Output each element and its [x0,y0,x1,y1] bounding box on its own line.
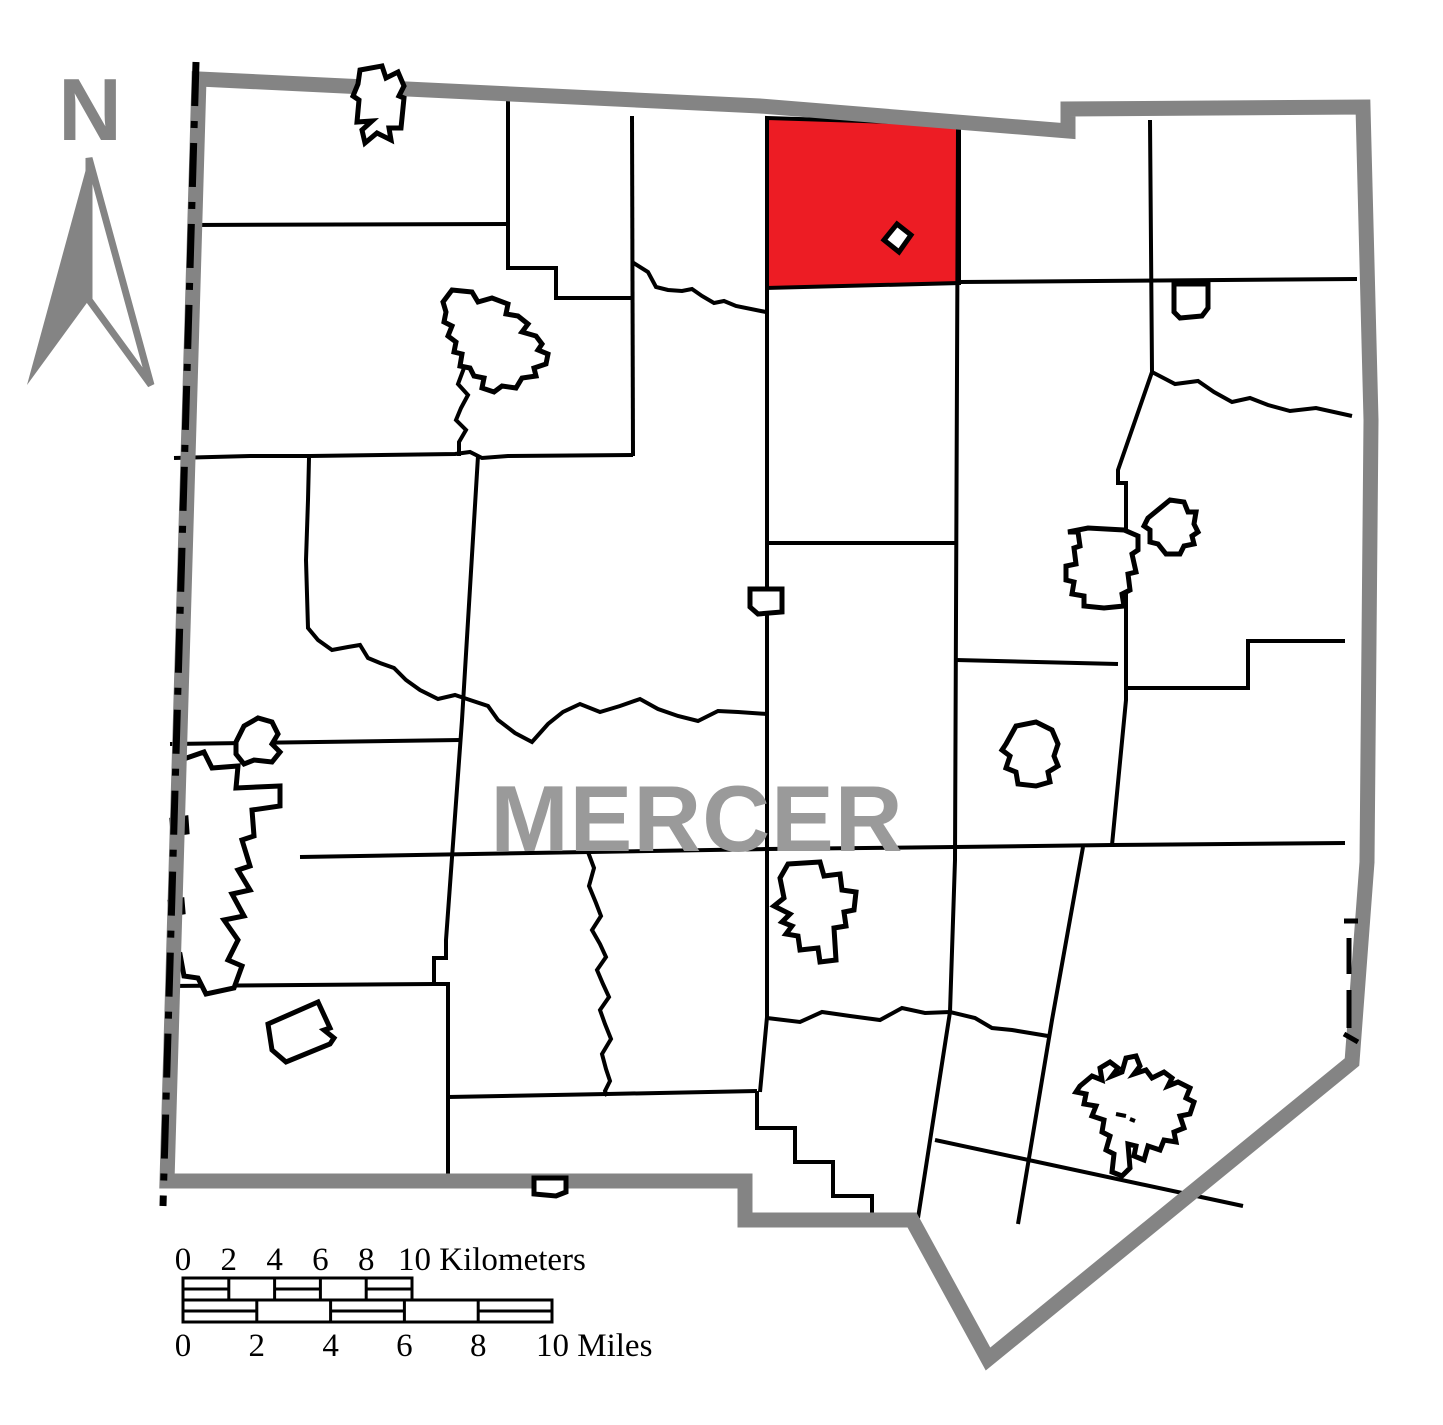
borough-outline [534,1178,566,1196]
county-name-label: MERCER [490,766,903,871]
borough-outline [1002,722,1058,786]
km-tick-6: 6 [312,1242,329,1278]
north-arrow-icon: N [27,60,151,385]
borough-outlines [170,224,1208,1176]
borough-outline [774,862,856,962]
county-map-canvas: MERCER N 0 2 4 6 8 10 Kilometers 0 2 4 6… [0,0,1443,1425]
boundary-line [170,740,460,744]
borough-outline [1144,500,1198,554]
township-boundary-lines [168,95,1357,1224]
boundary-line [306,458,767,742]
borough-outline [236,718,280,764]
borough-outline [750,589,782,614]
borough-outline [170,752,280,994]
boundary-line [956,641,1345,688]
boundary-line [190,224,508,225]
boundary-line [456,368,468,456]
state-line-dash-dot [163,62,196,1206]
boundary-line [767,1008,1048,1036]
north-arrow-right-wing [89,158,151,385]
borough-outline [268,1002,334,1062]
mi-tick-8: 8 [470,1328,487,1364]
mercer-county-map: MERCER N 0 2 4 6 8 10 Kilometers 0 2 4 6… [0,0,1443,1425]
km-tick-0: 0 [175,1242,192,1278]
highlighted-township [767,118,959,288]
river-boundary [588,852,611,1096]
boundary-line [1112,120,1152,845]
boundary-line [434,456,478,1182]
boundary-line [959,279,1357,282]
km-tick-4: 4 [266,1242,283,1278]
boundary-line [918,128,958,1218]
km-tick-8: 8 [358,1242,375,1278]
km-end-label: 10 Kilometers [398,1242,586,1278]
boundary-line [508,95,632,298]
boundary-line [757,1091,872,1216]
borough-outline [1174,284,1208,318]
miles-scalebar: 0 2 4 6 8 10 Miles [175,1300,653,1364]
boundary-line [1152,372,1352,416]
km-scalebar: 0 2 4 6 8 10 Kilometers [175,1242,586,1300]
borough-outline [353,66,404,143]
mi-tick-6: 6 [396,1328,413,1364]
north-arrow-left-wing [27,158,89,385]
km-tick-2: 2 [221,1242,238,1278]
north-label: N [58,60,122,159]
mi-tick-4: 4 [322,1328,339,1364]
mi-tick-0: 0 [175,1328,192,1364]
boundary-line [174,452,633,458]
borough-outline [1076,1056,1194,1176]
boundary-line [448,1091,757,1097]
mi-end-label: 10 Miles [536,1328,652,1364]
boundary-line [632,116,633,456]
mi-tick-2: 2 [249,1328,266,1364]
boundary-line [1018,847,1083,1224]
boundary-line [632,262,766,312]
